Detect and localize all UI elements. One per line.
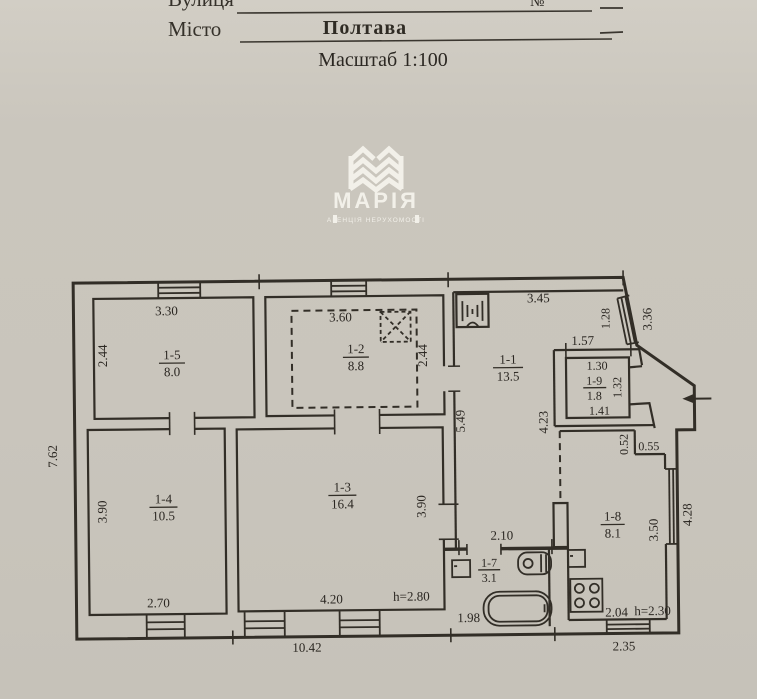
window-top-1 — [158, 282, 200, 298]
dim-r18-bottom: 2.04 — [605, 604, 628, 619]
outer-walls — [73, 277, 697, 639]
dim-r14-left: 3.90 — [94, 500, 109, 523]
dim-r13-bottom: 4.20 — [320, 591, 343, 606]
dim-r13-right: 3.90 — [413, 495, 428, 518]
svg-text:8.0: 8.0 — [164, 364, 180, 379]
dim-r15-top: 3.30 — [155, 303, 178, 318]
room-label-1-1: 1-1 13.5 — [493, 351, 523, 383]
svg-text:1-3: 1-3 — [334, 479, 351, 494]
room-label-1-5: 1-5 8.0 — [159, 347, 185, 379]
svg-text:10.5: 10.5 — [152, 508, 175, 523]
svg-text:1-9: 1-9 — [586, 374, 602, 388]
dim-r18-right-outer: 4.28 — [679, 503, 694, 526]
room-label-1-3: 1-3 16.4 — [328, 479, 356, 511]
dim-r12-right: 2.44 — [415, 344, 430, 367]
svg-text:8.1: 8.1 — [605, 525, 621, 540]
dim-r11-top: 3.45 — [527, 290, 550, 305]
svg-text:1.8: 1.8 — [587, 389, 602, 403]
heater-icon — [456, 294, 488, 327]
dim-r12-top: 3.60 — [329, 309, 352, 324]
dim-r11-left: 5.49 — [452, 410, 467, 433]
scanned-floorplan-page: Вулиця № Місто Полтава Масштаб 1:100 МАР… — [0, 0, 757, 699]
dim-r18-height: h=2.30 — [634, 603, 671, 618]
dim-r18-step-v: 0.52 — [617, 434, 631, 455]
kitchen-sink-icon — [568, 550, 585, 567]
dim-r19-above: 1.57 — [571, 333, 594, 348]
dashed-partition — [560, 431, 561, 503]
dim-hall-length: 4.23 — [535, 411, 550, 434]
number-rule-line-2 — [600, 32, 623, 33]
dim-overall-bottom: 10.42 — [292, 640, 321, 655]
svg-text:8.8: 8.8 — [348, 358, 364, 373]
room-label-1-9: 1-9 1.8 — [583, 374, 606, 403]
logo-name: МАРІЯ — [333, 188, 419, 213]
window-bottom-3 — [340, 611, 380, 636]
svg-text:1-8: 1-8 — [604, 508, 621, 523]
porch-wall — [629, 347, 655, 428]
city-value: Полтава — [323, 17, 407, 39]
bathtub-icon — [483, 591, 551, 626]
dim-hall-width: 2.10 — [490, 528, 513, 543]
svg-text:1-5: 1-5 — [163, 347, 180, 362]
svg-text:1-2: 1-2 — [347, 341, 364, 356]
dim-r18-right: 3.50 — [646, 519, 661, 542]
logo-tagline: АГЕНЦІЯ НЕРУХОМОСТІ — [327, 217, 425, 224]
agency-logo: МАРІЯ АГЕНЦІЯ НЕРУХОМОСТІ — [327, 149, 425, 224]
flue-x-mark — [380, 312, 410, 342]
room-1-3-walls — [237, 427, 445, 611]
dim-corner-total: 3.36 — [639, 307, 654, 330]
wall-pillar — [553, 503, 567, 547]
kitchen-window-bottom — [607, 619, 650, 633]
window-top-2 — [331, 280, 366, 296]
dim-r17-bottom: 1.98 — [457, 610, 480, 625]
svg-text:16.4: 16.4 — [331, 496, 354, 511]
dim-corner-window: 1.28 — [598, 308, 612, 329]
dim-overall-left: 7.62 — [45, 445, 60, 468]
room-label-1-8: 1-8 8.1 — [601, 508, 625, 540]
street-label: Вулиця — [168, 0, 234, 11]
dim-r19-top: 1.30 — [586, 359, 607, 373]
toilet-icon — [518, 552, 551, 574]
svg-text:1-7: 1-7 — [481, 556, 497, 570]
street-rule-line — [237, 11, 592, 13]
floor-plan: 1-5 8.0 1-2 8.8 1-1 13.5 1-9 1.8 1-4 — [43, 269, 714, 659]
entrance-arrow-icon — [682, 394, 711, 403]
dim-r13-height: h=2.80 — [393, 588, 430, 603]
scale-label: Масштаб 1:100 — [318, 49, 448, 71]
dim-r19-bottom: 1.41 — [589, 404, 610, 418]
city-label: Місто — [168, 17, 221, 41]
svg-text:3.1: 3.1 — [482, 571, 497, 585]
svg-text:13.5: 13.5 — [497, 368, 520, 383]
document-header: Вулиця № Місто Полтава Масштаб 1:100 — [168, 0, 623, 71]
dim-r18-step-h: 0.55 — [638, 439, 659, 453]
dim-r19-right: 1.32 — [610, 377, 624, 398]
room-label-1-2: 1-2 8.8 — [343, 341, 369, 373]
window-bottom-2 — [245, 612, 285, 637]
svg-text:1-4: 1-4 — [155, 491, 173, 506]
bath-sink-icon — [452, 560, 470, 577]
number-label: № — [530, 0, 544, 10]
dimension-ticks — [229, 270, 634, 644]
document-canvas: Вулиця № Місто Полтава Масштаб 1:100 МАР… — [0, 0, 757, 699]
svg-text:1-1: 1-1 — [499, 352, 516, 367]
logo-m-icon — [350, 149, 402, 190]
dim-porch-bottom: 2.35 — [613, 638, 636, 653]
city-rule-line — [240, 39, 612, 42]
dim-r14-bottom: 2.70 — [147, 595, 170, 610]
room-label-1-4: 1-4 10.5 — [149, 491, 177, 523]
door-caps — [169, 366, 501, 558]
stove-icon — [570, 579, 602, 612]
room-label-1-7: 1-7 3.1 — [478, 556, 500, 585]
window-bottom-1 — [147, 615, 185, 638]
dim-r15-left: 2.44 — [95, 344, 110, 367]
